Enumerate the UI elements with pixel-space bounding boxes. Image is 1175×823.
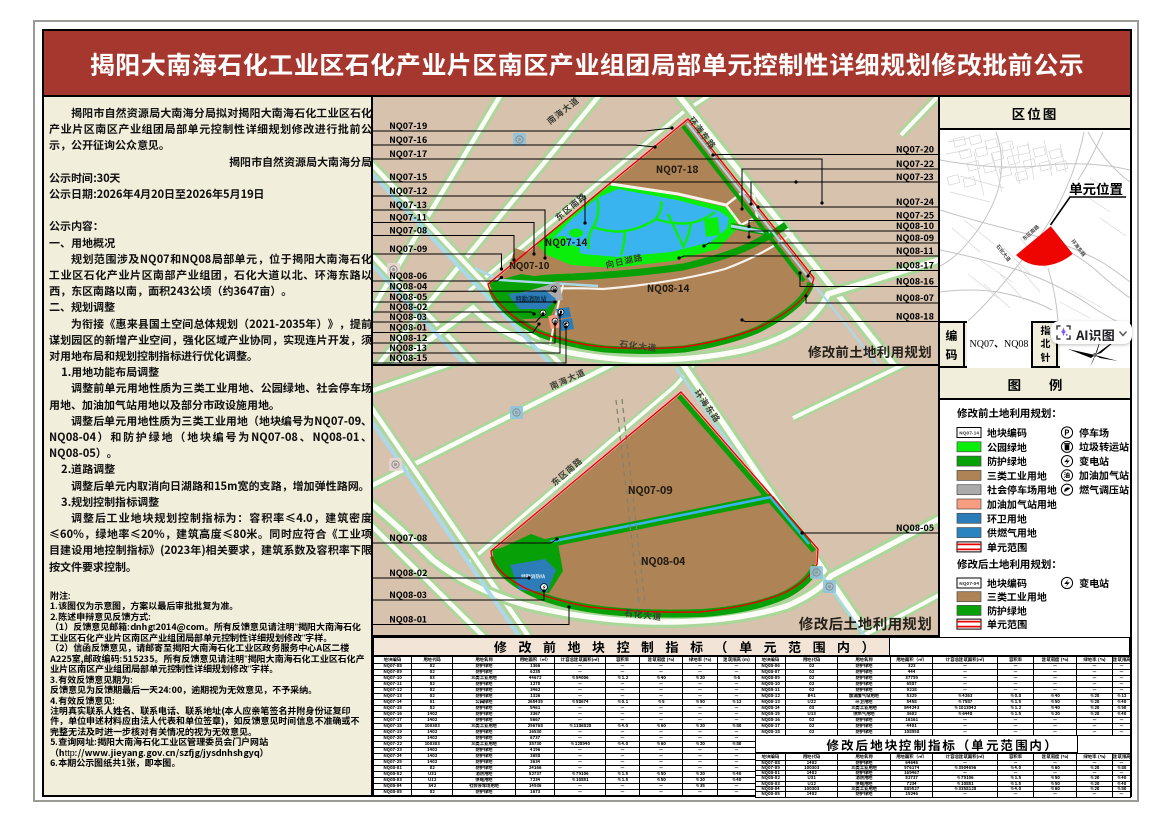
svg-text:NQ07-13: NQ07-13 [389, 198, 428, 211]
svg-text:NQ07-16: NQ07-16 [389, 133, 428, 146]
svg-text:P: P [1064, 428, 1069, 439]
svg-text:NQ07-09: NQ07-09 [628, 483, 673, 498]
svg-text:地块编码: 地块编码 [987, 425, 1027, 440]
svg-text:NQ07-11: NQ07-11 [389, 211, 427, 224]
svg-text:NQ07-22: NQ07-22 [896, 157, 935, 170]
svg-text:修改前土地利用规划：: 修改前土地利用规划： [956, 406, 1062, 421]
svg-text:NQ07-08: NQ07-08 [389, 531, 428, 544]
svg-text:NQ08-04: NQ08-04 [641, 554, 686, 569]
svg-text:单元范围: 单元范围 [987, 539, 1027, 554]
svg-text:油: 油 [1063, 471, 1070, 480]
svg-text:燃气调压站: 燃气调压站 [1079, 482, 1129, 497]
svg-text:停车场: 停车场 [1078, 424, 1109, 439]
svg-text:修改前土地利用规划: 修改前土地利用规划 [808, 341, 932, 361]
svg-text:NQ07-18: NQ07-18 [656, 161, 699, 176]
svg-text:NQ08-17: NQ08-17 [896, 259, 934, 272]
svg-text:NQ07-15: NQ07-15 [389, 170, 428, 183]
svg-text:单元范围: 单元范围 [987, 616, 1027, 631]
svg-text:加油加气站: 加油加气站 [1079, 467, 1129, 482]
svg-text:NQ07-09: NQ07-09 [389, 242, 428, 255]
svg-text:NQ07-12: NQ07-12 [389, 184, 428, 197]
svg-text:NQ07-24: NQ07-24 [896, 195, 935, 208]
svg-text:加油加气站用地: 加油加气站用地 [987, 496, 1058, 511]
svg-text:公园绿地: 公园绿地 [987, 439, 1028, 454]
svg-text:NQ08-01: NQ08-01 [389, 613, 427, 626]
svg-text:NQ07-14: NQ07-14 [545, 234, 589, 249]
svg-text:NQ07-23: NQ07-23 [896, 170, 935, 183]
svg-text:NQ08-14: NQ08-14 [647, 280, 691, 295]
svg-text:特勤消防站: 特勤消防站 [521, 573, 545, 580]
svg-text:NQ08-02: NQ08-02 [389, 566, 428, 579]
svg-text:NQ08-05: NQ08-05 [896, 521, 935, 534]
svg-text:NQ08-11: NQ08-11 [896, 244, 934, 257]
svg-text:NQ07-14: NQ07-14 [959, 430, 980, 436]
svg-text:环卫用地: 环卫用地 [986, 510, 1028, 525]
svg-text:变电站: 变电站 [1079, 453, 1109, 468]
svg-text:NQ08-15: NQ08-15 [389, 351, 428, 364]
svg-text:NQ07-20: NQ07-20 [896, 143, 935, 156]
svg-text:社会停车场用地: 社会停车场用地 [987, 482, 1058, 497]
svg-text:防护绿地: 防护绿地 [987, 453, 1028, 468]
svg-text:垃圾转运站: 垃圾转运站 [1079, 439, 1129, 454]
svg-text:修改后土地利用规划: 修改后土地利用规划 [799, 613, 932, 634]
svg-text:NQ08-18: NQ08-18 [896, 310, 935, 323]
svg-text:单元位置: 单元位置 [1069, 178, 1123, 198]
svg-text:NQ08-07: NQ08-07 [896, 291, 934, 304]
svg-text:修改后土地利用规划：: 修改后土地利用规划： [956, 557, 1062, 572]
svg-text:NQ07-08: NQ07-08 [389, 224, 428, 237]
svg-text:变电站: 变电站 [1079, 575, 1109, 590]
svg-text:供燃气用地: 供燃气用地 [986, 525, 1038, 540]
svg-text:NQ08-03: NQ08-03 [389, 588, 428, 601]
svg-text:NQ08-16: NQ08-16 [896, 275, 935, 288]
svg-text:NQ07-19: NQ07-19 [389, 119, 428, 132]
svg-text:NQ08-09: NQ08-09 [896, 231, 935, 244]
svg-text:NQ07-17: NQ07-17 [389, 147, 427, 160]
svg-text:NQ07-04: NQ07-04 [959, 581, 980, 587]
svg-text:三类工业用地: 三类工业用地 [987, 467, 1048, 482]
